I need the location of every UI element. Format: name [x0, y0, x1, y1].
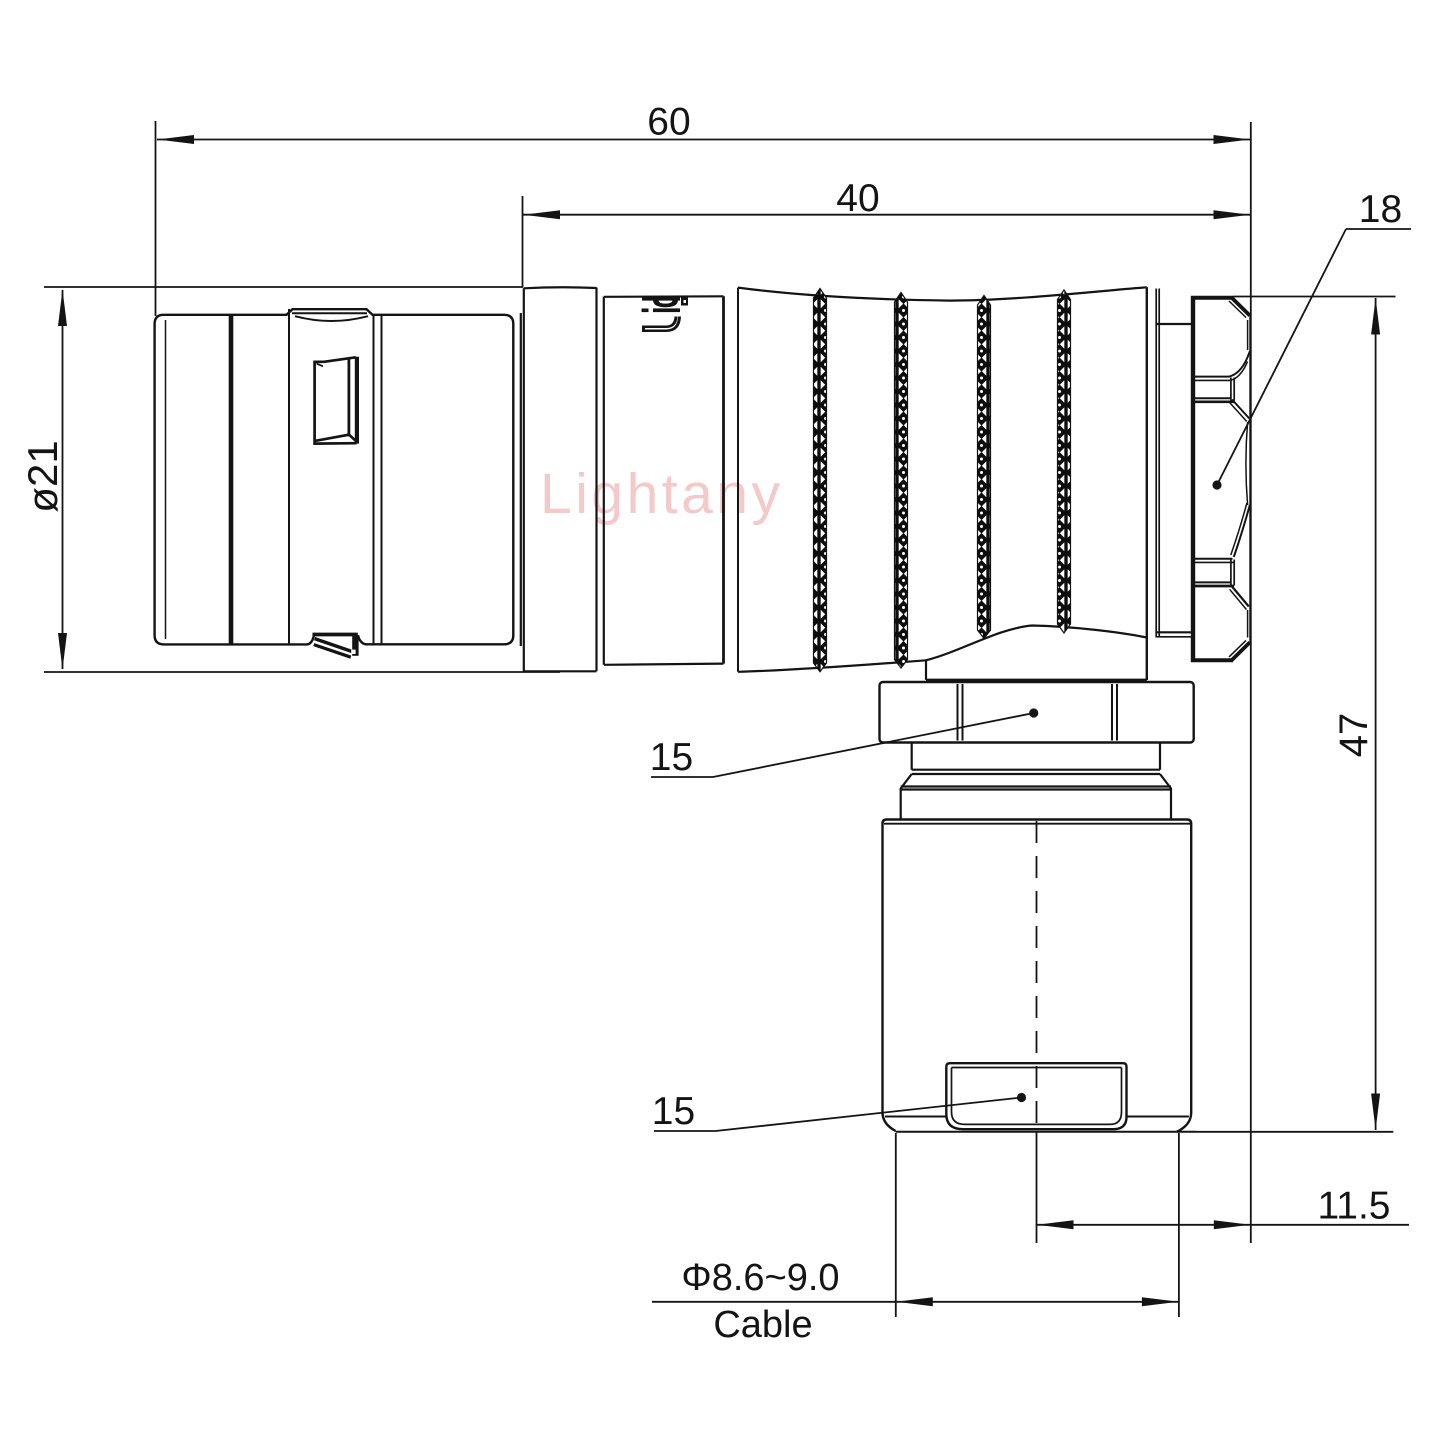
svg-text:60: 60 [647, 101, 690, 144]
svg-text:Lightany: Lightany [540, 462, 784, 526]
svg-text:40: 40 [836, 177, 879, 220]
svg-text:11.5: 11.5 [1317, 1185, 1390, 1228]
svg-text:47: 47 [1332, 713, 1376, 758]
svg-text:15: 15 [652, 1090, 695, 1133]
svg-text:ø21: ø21 [19, 440, 66, 512]
svg-text:Φ8.6~9.0: Φ8.6~9.0 [681, 1257, 839, 1299]
svg-text:Cable: Cable [713, 1304, 812, 1346]
svg-text:18: 18 [1359, 188, 1402, 231]
svg-text:15: 15 [650, 736, 693, 779]
